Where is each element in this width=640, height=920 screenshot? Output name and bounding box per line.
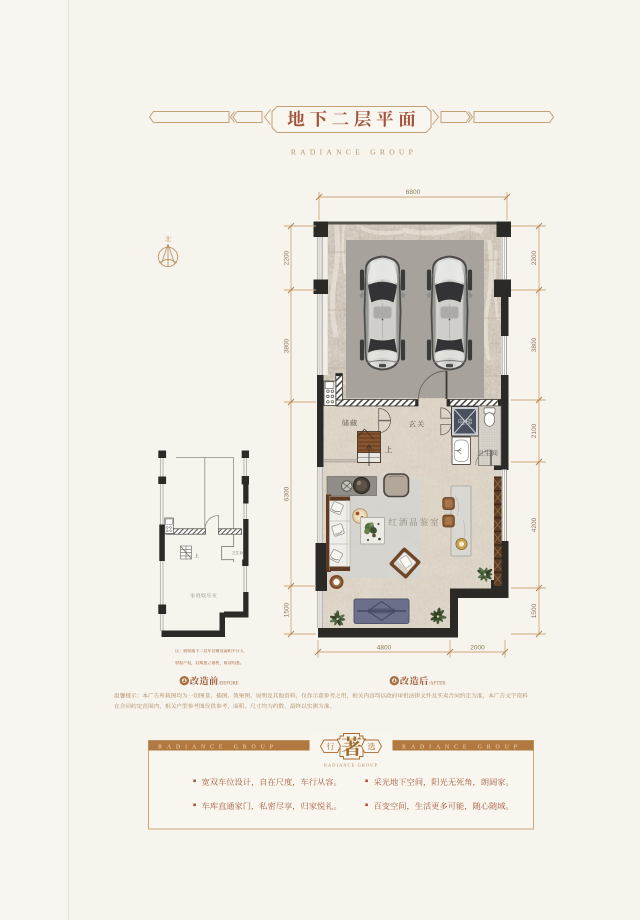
svg-text:RADIANCE GROUP: RADIANCE GROUP <box>402 744 522 750</box>
svg-text:6300: 6300 <box>284 486 291 501</box>
svg-text:2000: 2000 <box>470 645 485 652</box>
svg-text:RADIANCE GROUP: RADIANCE GROUP <box>291 148 417 157</box>
svg-text:RADIANCE GROUP: RADIANCE GROUP <box>324 762 378 767</box>
svg-text:2200: 2200 <box>531 250 538 265</box>
svg-text:2200: 2200 <box>284 250 291 265</box>
svg-text:6800: 6800 <box>406 189 421 196</box>
svg-text:/BEFORE: /BEFORE <box>219 681 239 686</box>
svg-text:3800: 3800 <box>531 337 538 352</box>
svg-text:1500: 1500 <box>531 603 538 618</box>
svg-text:1500: 1500 <box>284 602 291 617</box>
svg-text:2100: 2100 <box>531 423 538 438</box>
svg-text:3800: 3800 <box>284 338 291 353</box>
svg-text:/AFTER: /AFTER <box>429 681 447 686</box>
svg-text:4200: 4200 <box>531 517 538 532</box>
svg-text:RADIANCE GROUP: RADIANCE GROUP <box>158 744 278 750</box>
svg-text:4800: 4800 <box>377 645 392 652</box>
